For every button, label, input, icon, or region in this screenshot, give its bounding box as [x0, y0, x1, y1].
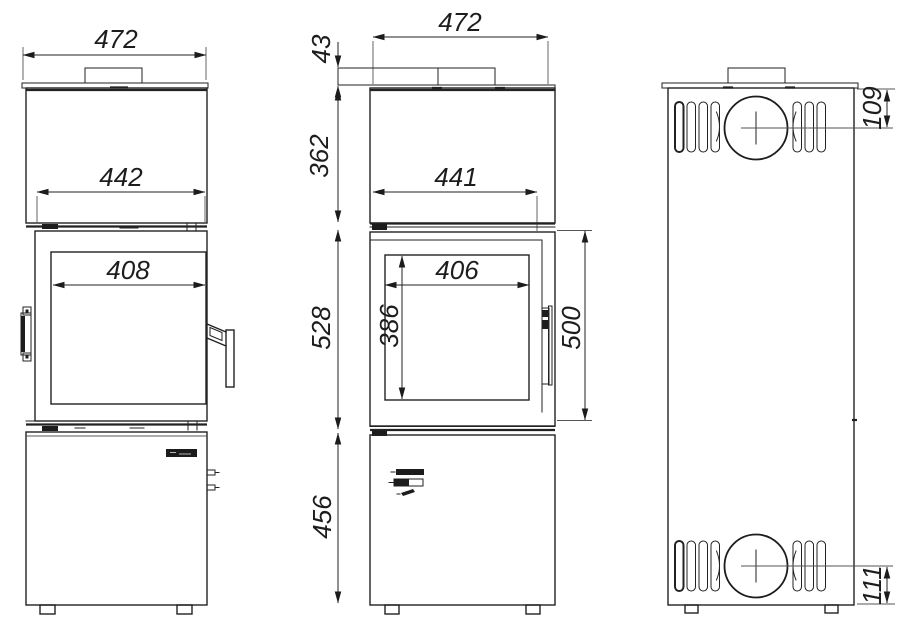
rear-flue-collar — [728, 68, 785, 83]
knob-outlines — [207, 470, 215, 490]
side-shelf-band — [370, 224, 555, 233]
side-base-cabinet — [370, 435, 555, 605]
dim-side-upper-height: 362 — [304, 89, 338, 222]
vent-slot — [675, 102, 684, 152]
vent-slot — [699, 102, 708, 152]
side-door-latch — [542, 306, 552, 385]
vent-slot — [711, 102, 720, 152]
hinge-pin — [21, 316, 25, 352]
dim-label: 408 — [106, 255, 150, 285]
front-upper-body — [26, 88, 207, 223]
front-shelf-band — [26, 223, 207, 231]
dim-label: 386 — [374, 304, 404, 348]
dim-label: 456 — [307, 495, 337, 539]
vent-slot — [817, 102, 826, 152]
technical-drawing-page: 472 442 408 — [0, 0, 903, 627]
air-lever — [401, 489, 415, 496]
vent-slot — [675, 541, 684, 591]
rear-foot-left — [685, 605, 698, 613]
front-door-handle — [207, 324, 234, 387]
divider-detail-ticks — [75, 422, 197, 430]
dim-side-top-plate-height: 43 — [306, 34, 338, 101]
vent-slot — [711, 541, 720, 591]
dim-label: 500 — [556, 306, 586, 350]
rear-vent-slots-top — [675, 102, 826, 152]
dim-label: 362 — [304, 134, 334, 178]
front-base-cabinet — [26, 432, 207, 605]
dim-label: 528 — [306, 306, 336, 350]
latch-bar — [542, 308, 549, 384]
front-divider-band — [26, 421, 207, 431]
dim-side-door-opening-height: 500 — [556, 231, 592, 421]
dim-label: 406 — [435, 255, 479, 285]
latch-detail-1 — [543, 310, 549, 317]
knob-ticks — [215, 473, 219, 488]
dim-label: 43 — [306, 34, 336, 63]
rear-top-plate — [662, 83, 858, 88]
front-view: 472 442 408 — [21, 24, 234, 614]
side-upper-body — [370, 88, 555, 223]
extension-lines — [37, 196, 205, 222]
rear-view: 109 111 — [662, 68, 895, 613]
dim-rear-flue-offset: 109 — [857, 86, 895, 129]
dim-side-inner-width: 441 — [373, 162, 537, 231]
vent-slot — [793, 102, 802, 152]
dim-side-door-section-height: 528 — [306, 230, 338, 429]
stove-dimension-drawing: 472 442 408 — [0, 0, 903, 627]
dim-label: 109 — [857, 86, 887, 129]
front-flue-collar — [85, 68, 142, 83]
dim-label: 111 — [857, 565, 887, 605]
side-foot-right — [526, 605, 540, 614]
air-slider-primary — [396, 469, 424, 475]
dim-front-firebox-width: 442 — [37, 162, 205, 222]
front-foot-right — [177, 605, 192, 614]
side-view: 472 43 362 441 — [304, 7, 592, 614]
vent-slot — [687, 541, 696, 591]
side-foot-left — [385, 605, 399, 614]
front-door-hinge — [21, 307, 31, 361]
vent-slot — [699, 541, 708, 591]
front-brand-plate — [166, 449, 197, 457]
vent-slot — [687, 102, 696, 152]
shelf-latch-detail — [372, 224, 387, 230]
air-slider-secondary-knob — [394, 479, 409, 486]
dim-side-glass-width: 406 — [385, 255, 529, 285]
side-top-plate — [338, 68, 555, 88]
rear-body-panel — [668, 88, 854, 605]
front-foot-left — [40, 605, 55, 614]
vent-slot — [805, 102, 814, 152]
dim-label: 472 — [94, 24, 138, 54]
handle-bar — [226, 330, 234, 387]
dim-side-overall-width: 472 — [373, 7, 548, 84]
dim-label: 442 — [99, 162, 143, 192]
extension-lines — [373, 41, 548, 84]
shelf-latch-detail — [42, 224, 58, 229]
front-side-knobs — [207, 470, 219, 490]
dim-side-glass-height: 386 — [374, 256, 404, 399]
dim-rear-outlet-offset: 111 — [857, 565, 895, 605]
divider-latch-detail — [42, 426, 58, 431]
hinge-screw-bottom — [26, 356, 29, 359]
dim-front-glass-width: 408 — [53, 255, 205, 285]
side-air-controls — [389, 469, 424, 496]
dim-side-base-height: 456 — [307, 433, 338, 603]
dim-label: 472 — [438, 7, 482, 37]
dim-label: 441 — [434, 162, 477, 192]
dim-front-overall-width: 472 — [23, 24, 206, 80]
latch-detail-2 — [543, 320, 549, 329]
hinge-screw-top — [26, 310, 29, 313]
rear-foot-right — [825, 605, 838, 613]
